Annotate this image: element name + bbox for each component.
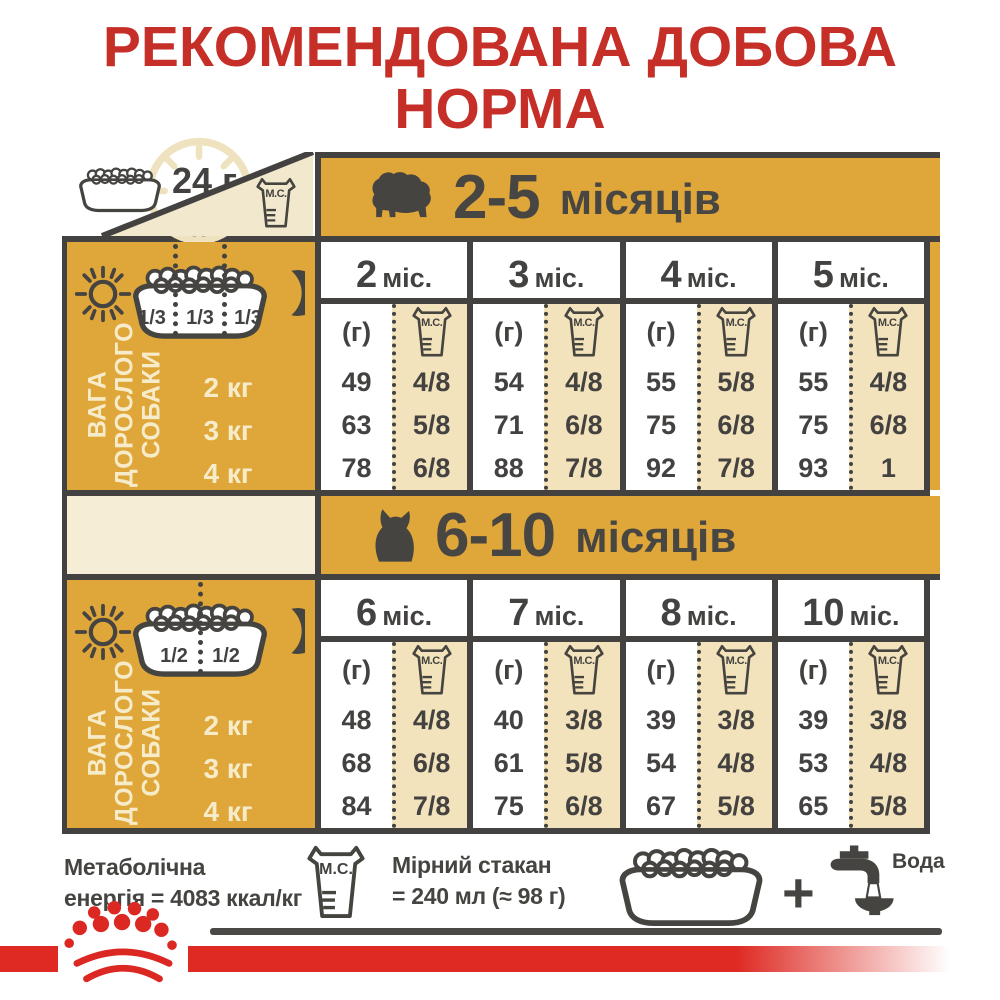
age-range: 2-5 [453, 162, 540, 233]
divider-line [210, 928, 942, 935]
weight-label: 2 кг [187, 372, 269, 404]
gold-edge-strip [930, 242, 940, 490]
month-header: 4міс. [626, 242, 772, 304]
puppy-icon [367, 169, 433, 225]
cups-value: 5/8 [853, 785, 924, 828]
red-bar [188, 946, 950, 972]
grams-value: 54 [626, 742, 697, 785]
portion-divider [198, 582, 203, 674]
food-bowl-icon [606, 842, 776, 938]
grams-value: 39 [778, 699, 849, 742]
grams-value: 39 [626, 699, 697, 742]
moon-icon [271, 268, 305, 318]
grams-value: 88 [473, 447, 544, 490]
month-header: 8міс. [626, 580, 772, 642]
cups-value: 7/8 [548, 447, 619, 490]
grams-header: (г) [799, 317, 828, 348]
month-column: 8міс. (г) 39 54 67 М.С. 3/8 4/8 5/8 [620, 580, 772, 828]
grams-value: 63 [321, 404, 392, 447]
measuring-cup-icon: М.С. [714, 644, 758, 697]
weight-axis-label: ВАГА ДОРОСЛОГО СОБАКИ [85, 643, 166, 843]
puppy-sitting-icon [367, 504, 415, 566]
grams-header: (г) [494, 655, 523, 686]
water-label: Вода [892, 850, 945, 874]
cups-value: 4/8 [853, 361, 924, 404]
feeding-guide-page: РЕКОМЕНДОВАНА ДОБОВА НОРМА 24 г М.С. 2-5… [0, 0, 1000, 1000]
grams-header: (г) [342, 317, 371, 348]
cups-value: 5/8 [701, 361, 772, 404]
portion-fraction: 1/3 [227, 307, 269, 330]
month-column: 4міс. (г) 55 75 92 М.С. 5/8 6/8 7/8 [620, 242, 772, 490]
daily-allowance-corner: 24 г М.С. [62, 152, 315, 242]
month-header: 6міс. [321, 580, 467, 642]
cups-value: 6/8 [548, 404, 619, 447]
cups-value: 6/8 [701, 404, 772, 447]
cups-value: 5/8 [396, 404, 467, 447]
measuring-cup-icon: М.С. [714, 306, 758, 359]
grams-value: 75 [626, 404, 697, 447]
grams-value: 40 [473, 699, 544, 742]
age-unit: місяців [560, 175, 721, 225]
cups-value: 7/8 [701, 447, 772, 490]
weight-label: 3 кг [187, 415, 269, 447]
age-unit: місяців [575, 513, 736, 563]
month-column: 2міс. (г) 49 63 78 М.С. 4/8 5/8 6/8 [315, 242, 467, 490]
title-line-1: РЕКОМЕНДОВАНА ДОБОВА [0, 16, 1000, 78]
cups-value: 4/8 [396, 361, 467, 404]
water-tap-icon [818, 838, 902, 930]
weight-label: 4 кг [187, 458, 269, 490]
cups-value: 5/8 [548, 742, 619, 785]
month-column: 10міс. (г) 39 53 65 М.С. 3/8 4/8 5/8 [772, 580, 924, 828]
cups-value: 4/8 [853, 742, 924, 785]
cups-value: 3/8 [853, 699, 924, 742]
weight-label: 3 кг [187, 753, 269, 785]
month-header: 5міс. [778, 242, 924, 304]
cups-value: 4/8 [701, 742, 772, 785]
cups-value: 4/8 [396, 699, 467, 742]
grams-value: 49 [321, 361, 392, 404]
weight-label: 4 кг [187, 796, 269, 828]
measuring-cup-icon: М.С. [410, 644, 454, 697]
grams-value: 67 [626, 785, 697, 828]
month-column: 6міс. (г) 48 68 84 М.С. 4/8 6/8 7/8 [315, 580, 467, 828]
cups-value: 6/8 [853, 404, 924, 447]
portion-fraction: 1/2 [205, 645, 247, 668]
grams-value: 93 [778, 447, 849, 490]
month-header: 10міс. [778, 580, 924, 642]
grams-value: 55 [778, 361, 849, 404]
measuring-cup-icon: М.С. [562, 644, 606, 697]
month-column: 7міс. (г) 40 61 75 М.С. 3/8 5/8 6/8 [467, 580, 619, 828]
measuring-cup-icon: М.С. [562, 306, 606, 359]
feeding-table-2-5: 2міс. (г) 49 63 78 М.С. 4/8 5/8 6/8 3міс… [315, 242, 930, 496]
grams-value: 54 [473, 361, 544, 404]
title-line-2: НОРМА [0, 78, 1000, 140]
measuring-cup-icon: М.С. [410, 306, 454, 359]
cups-value: 3/8 [548, 699, 619, 742]
weight-axis-label: ВАГА ДОРОСЛОГО СОБАКИ [85, 305, 166, 505]
sidebar-feeding-6-10: 1/2 1/2 ВАГА ДОРОСЛОГО СОБАКИ 2 кг 3 кг … [62, 580, 315, 834]
grams-header: (г) [646, 655, 675, 686]
grams-header: (г) [646, 317, 675, 348]
moon-icon [271, 606, 305, 656]
cups-value: 6/8 [396, 742, 467, 785]
month-column: 5міс. (г) 55 75 93 М.С. 4/8 6/8 1 [772, 242, 924, 490]
measuring-cup-icon: М.С. [254, 177, 298, 230]
grams-value: 75 [778, 404, 849, 447]
cups-value: 3/8 [701, 699, 772, 742]
month-column: 3міс. (г) 54 71 88 М.С. 4/8 6/8 7/8 [467, 242, 619, 490]
plus-sign: + [782, 860, 815, 925]
measuring-cup-icon: М.С. [866, 644, 910, 697]
feeding-table-6-10: 6міс. (г) 48 68 84 М.С. 4/8 6/8 7/8 7міс… [315, 580, 930, 834]
grams-value: 48 [321, 699, 392, 742]
measuring-cup-icon: М.С. [866, 306, 910, 359]
month-header: 3міс. [473, 242, 619, 304]
cups-value: 1 [853, 447, 924, 490]
cups-value: 4/8 [548, 361, 619, 404]
grams-value: 61 [473, 742, 544, 785]
grams-header: (г) [799, 655, 828, 686]
sidebar-feeding-2-5: 1/3 1/3 1/3 ВАГА ДОРОСЛОГО СОБАКИ 2 кг 3… [62, 242, 315, 496]
red-bar-left [0, 946, 58, 972]
measuring-cup-icon: М.С. [304, 844, 368, 922]
grams-header: (г) [342, 655, 371, 686]
grams-value: 55 [626, 361, 697, 404]
weight-label: 2 кг [187, 710, 269, 742]
grams-value: 92 [626, 447, 697, 490]
grams-value: 75 [473, 785, 544, 828]
month-header: 2міс. [321, 242, 467, 304]
cups-value: 7/8 [396, 785, 467, 828]
grams-value: 53 [778, 742, 849, 785]
section-header-2-5: 2-5 місяців [315, 152, 940, 242]
spacer-cell [62, 496, 315, 580]
portion-divider [173, 244, 178, 336]
month-header: 7міс. [473, 580, 619, 642]
grams-value: 78 [321, 447, 392, 490]
cups-value: 6/8 [548, 785, 619, 828]
cups-value: 5/8 [701, 785, 772, 828]
grams-value: 68 [321, 742, 392, 785]
grams-value: 84 [321, 785, 392, 828]
grams-header: (г) [494, 317, 523, 348]
royal-canin-crown-logo [56, 900, 190, 998]
cups-value: 6/8 [396, 447, 467, 490]
section-header-6-10: 6-10 місяців [315, 496, 940, 580]
age-range: 6-10 [435, 500, 555, 571]
page-title: РЕКОМЕНДОВАНА ДОБОВА НОРМА [0, 16, 1000, 140]
grams-value: 65 [778, 785, 849, 828]
measuring-cup-note: Мірний стакан = 240 мл (≈ 98 г) [392, 850, 565, 912]
portion-fraction: 1/3 [179, 307, 221, 330]
grams-value: 71 [473, 404, 544, 447]
